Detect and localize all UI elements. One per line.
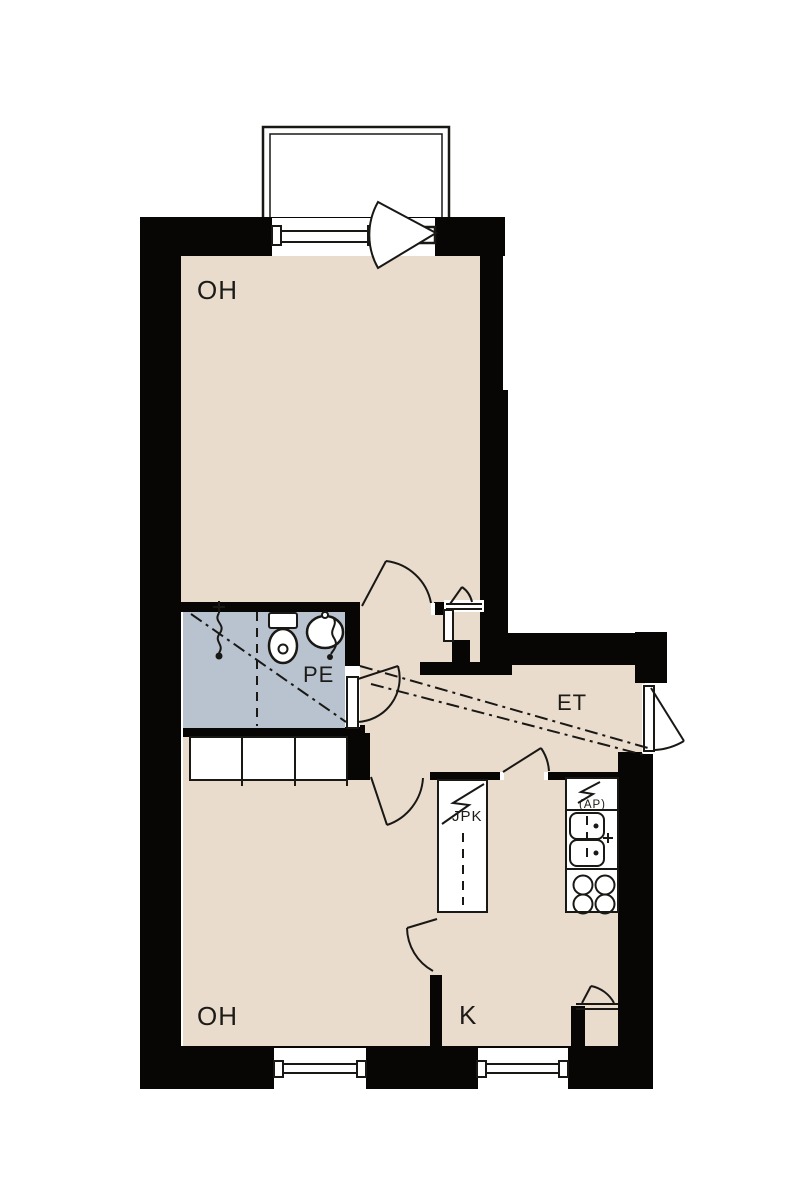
- wall-bathroom-right: [345, 602, 360, 667]
- room-label-living-bottom: OH: [197, 1001, 238, 1031]
- appliance-label-dishwasher: (AP): [579, 799, 606, 811]
- wall-jamb-jpk: [430, 772, 438, 780]
- living-room-top-floor: [181, 256, 483, 602]
- wall-niche-notch: [452, 640, 470, 662]
- living-room-bottom-floor: [183, 737, 442, 1046]
- floor-plan-canvas: OH PE ET JPK (AP) K OH: [0, 0, 807, 1200]
- wall-bottom: [140, 1046, 653, 1089]
- room-label-bathroom: PE: [303, 662, 334, 687]
- hatch-leaf: [444, 610, 453, 641]
- opening-living-window: [274, 1048, 366, 1089]
- window-frame-cap: [274, 1061, 283, 1077]
- window-frame-cap: [357, 1061, 366, 1077]
- opening-kitchen-window: [478, 1048, 568, 1089]
- wardrobe-unit: [242, 737, 295, 780]
- wall-closet-stub: [348, 733, 370, 780]
- wall-right-lower: [618, 752, 653, 1089]
- wall-right-upper-step: [480, 390, 508, 667]
- jamb-cap-top-door: [431, 603, 435, 615]
- room-label-living-top: OH: [197, 275, 238, 305]
- wall-hall-top: [508, 633, 636, 665]
- window-frame-cap: [272, 226, 281, 245]
- fridge-freezer-unit: [438, 780, 487, 912]
- wardrobes: [190, 737, 347, 786]
- basin-faucet-icon: [322, 612, 328, 618]
- wall-hall-upper-band: [420, 662, 512, 675]
- toilet-bowl: [269, 629, 297, 663]
- floor-plan-drawing: OH PE ET JPK (AP) K OH: [0, 0, 807, 1200]
- washbasin: [307, 616, 343, 648]
- door-leaf-closed: [644, 686, 654, 751]
- room-label-entry-hall: ET: [557, 690, 587, 715]
- toilet-tank: [269, 613, 297, 628]
- jamb-cap-kitchen-right: [544, 772, 548, 780]
- wall-corner-closet-stub: [571, 1006, 585, 1046]
- door-leaf-closed: [347, 677, 358, 728]
- jamb-cap-kitchen-left: [500, 772, 504, 780]
- fridge-freezer-cabinet: [438, 780, 487, 912]
- wall-bathroom-bottom: [183, 728, 365, 737]
- basin-drain-dot: [327, 654, 333, 660]
- wall-right-upper: [480, 217, 503, 392]
- window-frame-cap: [477, 1061, 486, 1077]
- room-label-kitchen: K: [459, 1000, 477, 1030]
- appliance-label-fridge-freezer: JPK: [452, 808, 483, 825]
- wall-kitchen-stub: [430, 975, 442, 1046]
- balcony: [263, 127, 449, 223]
- balcony-inner-rail: [270, 134, 442, 223]
- door-swing-arc: [655, 741, 684, 750]
- entry-door: [644, 686, 684, 751]
- sink-drain-icon: [594, 824, 599, 829]
- balcony-outer-rail: [263, 127, 449, 223]
- wall-entry-corner: [635, 632, 667, 683]
- sink-drain-icon: [594, 851, 599, 856]
- wardrobe-unit: [295, 737, 347, 780]
- wall-living-top-bottom: [181, 602, 360, 612]
- floor-drain-icon: [216, 653, 223, 660]
- wall-kitchen-top-left: [438, 772, 503, 780]
- wall-left: [140, 217, 181, 1089]
- wardrobe-unit: [190, 737, 242, 780]
- window-frame-cap: [559, 1061, 568, 1077]
